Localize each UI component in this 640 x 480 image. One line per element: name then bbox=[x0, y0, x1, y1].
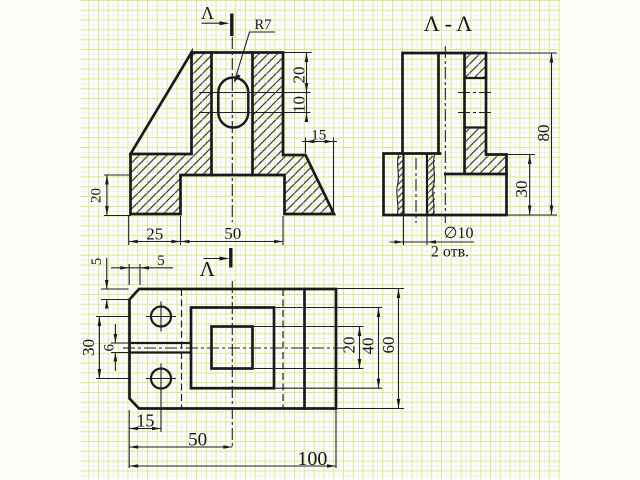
svg-text:10: 10 bbox=[290, 96, 309, 113]
svg-text:20: 20 bbox=[89, 188, 105, 203]
svg-text:5: 5 bbox=[157, 253, 165, 269]
svg-text:Λ - Λ: Λ - Λ bbox=[424, 11, 472, 36]
svg-text:25: 25 bbox=[146, 225, 163, 244]
svg-text:50: 50 bbox=[224, 224, 241, 243]
svg-text:∅10: ∅10 bbox=[444, 225, 474, 242]
svg-text:80: 80 bbox=[534, 125, 553, 142]
svg-text:5: 5 bbox=[89, 258, 105, 266]
svg-text:15: 15 bbox=[311, 128, 326, 144]
svg-text:15: 15 bbox=[136, 411, 154, 431]
svg-text:R7: R7 bbox=[255, 17, 272, 33]
svg-text:2 отв.: 2 отв. bbox=[431, 244, 469, 261]
svg-text:Λ: Λ bbox=[200, 257, 216, 281]
svg-text:30: 30 bbox=[79, 339, 98, 356]
svg-text:20: 20 bbox=[290, 67, 309, 84]
svg-text:100: 100 bbox=[297, 448, 327, 470]
svg-text:50: 50 bbox=[188, 430, 207, 451]
svg-text:20: 20 bbox=[340, 337, 359, 354]
svg-text:Λ: Λ bbox=[201, 3, 214, 23]
svg-text:40: 40 bbox=[359, 338, 378, 355]
svg-text:6: 6 bbox=[102, 344, 118, 352]
svg-text:30: 30 bbox=[512, 181, 531, 198]
svg-text:60: 60 bbox=[379, 337, 398, 354]
